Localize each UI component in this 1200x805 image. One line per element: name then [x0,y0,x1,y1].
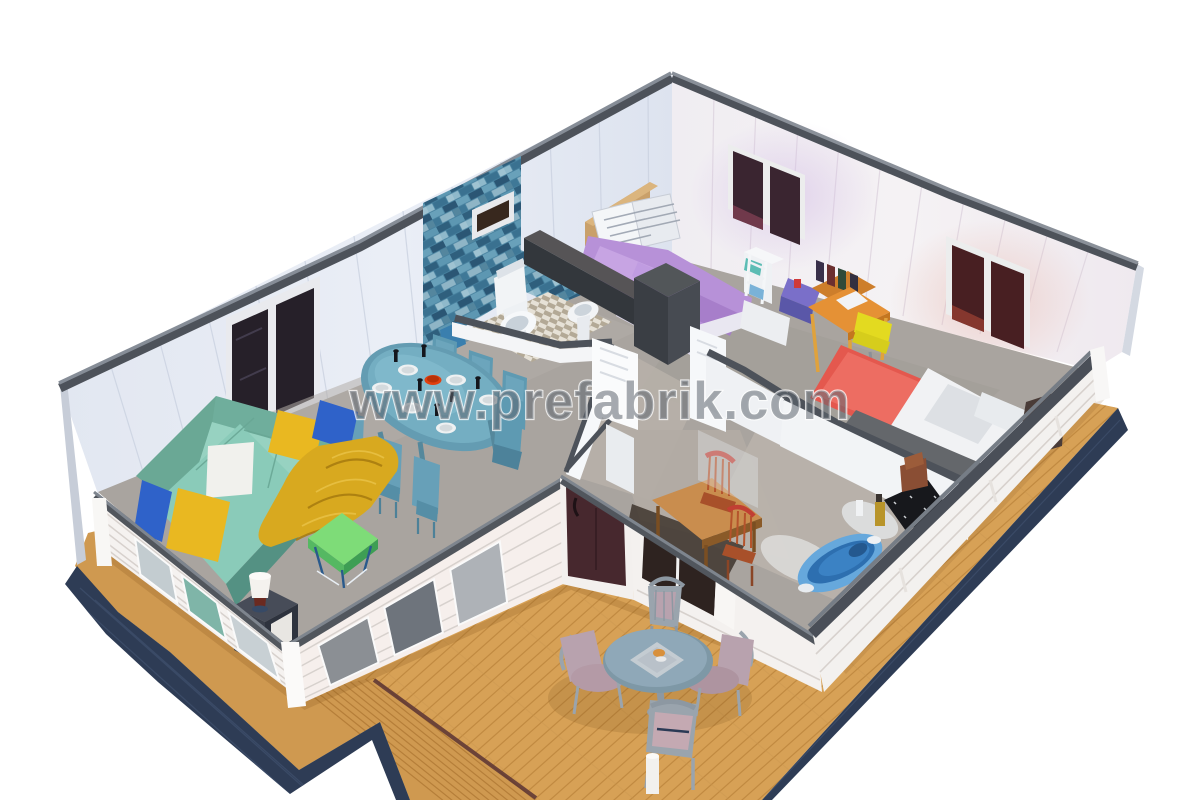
svg-text:www.prefabrik.com: www.prefabrik.com [349,372,851,431]
